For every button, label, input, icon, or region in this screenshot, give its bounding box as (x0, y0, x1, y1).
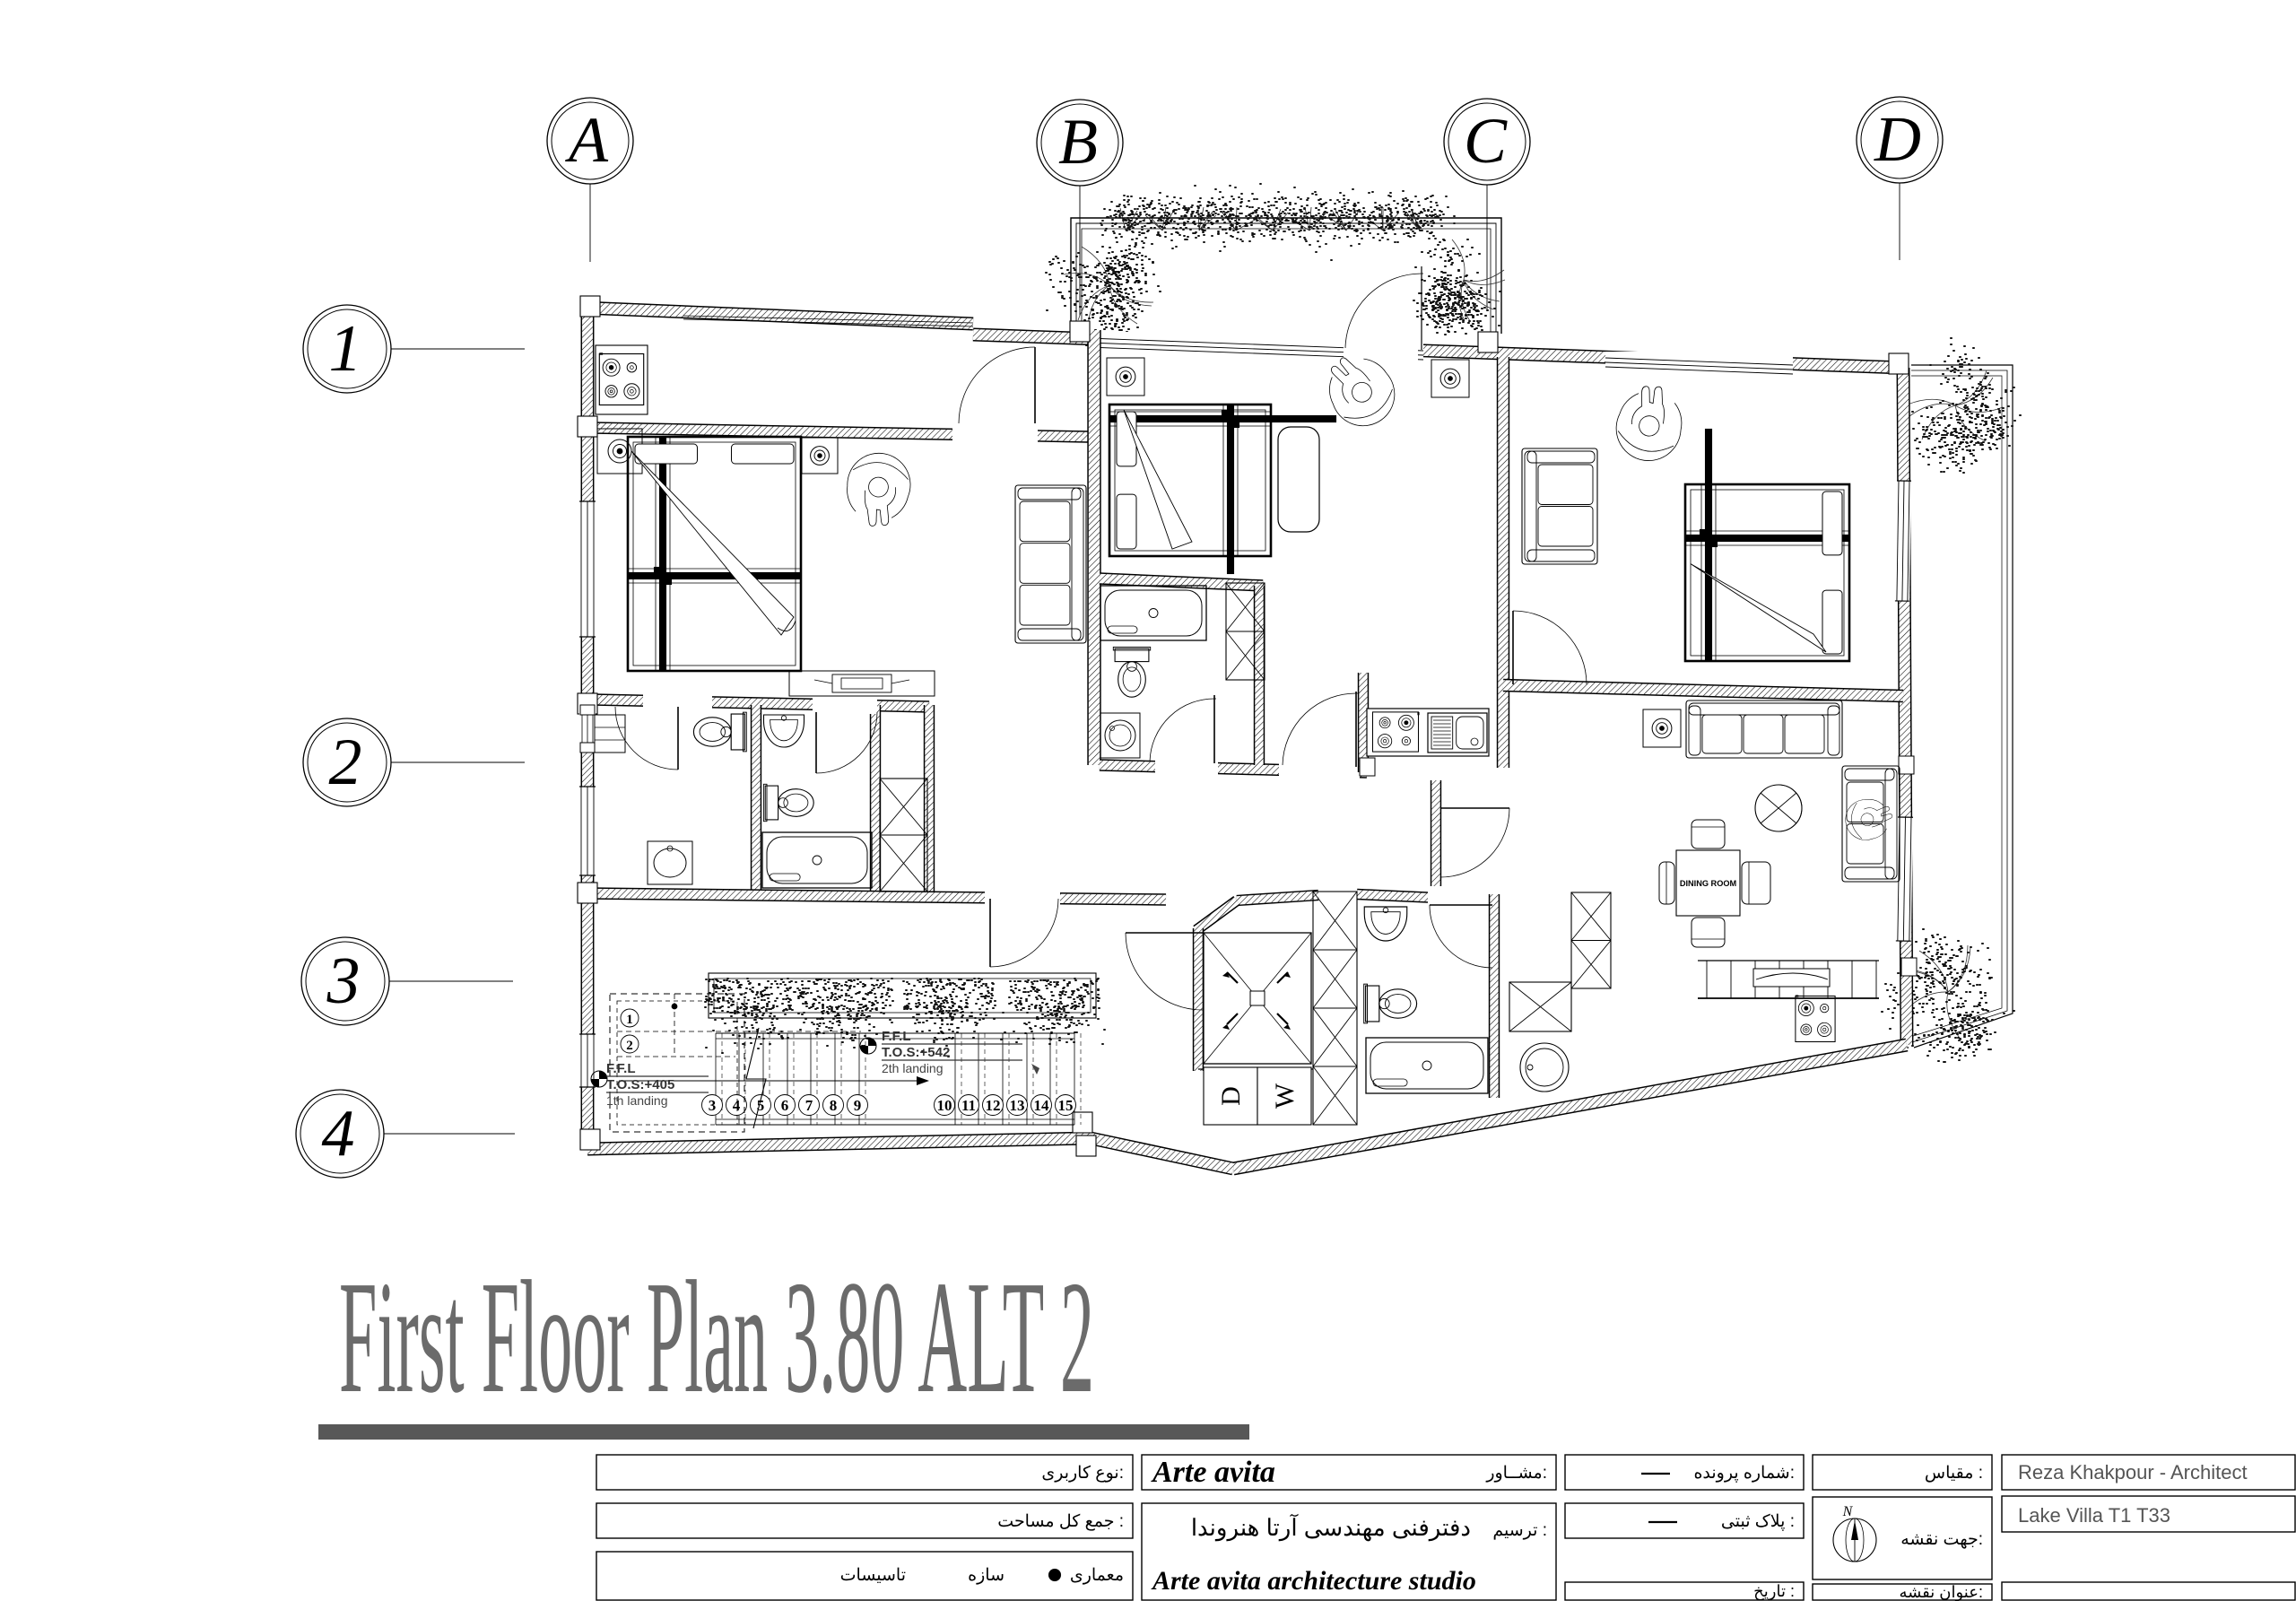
svg-text:D: D (1874, 103, 1921, 175)
svg-text:N: N (1842, 1504, 1854, 1519)
svg-text:معماری: معماری (1070, 1566, 1124, 1585)
svg-text:10: 10 (937, 1097, 952, 1114)
svg-text:T.O.S:+405: T.O.S:+405 (606, 1077, 674, 1092)
svg-text:مقیاس :: مقیاس : (1925, 1464, 1983, 1483)
svg-text:15: 15 (1058, 1097, 1074, 1114)
svg-text:6: 6 (781, 1097, 789, 1114)
svg-text:4: 4 (322, 1097, 355, 1170)
svg-text:2: 2 (626, 1039, 633, 1053)
svg-text:تاریخ :: تاریخ : (1753, 1582, 1795, 1601)
svg-text:7: 7 (805, 1097, 813, 1114)
svg-text:1: 1 (626, 1013, 633, 1027)
svg-text:ترسیم :: ترسیم : (1492, 1521, 1547, 1540)
svg-text:Lake Villa T1 T33: Lake Villa T1 T33 (2018, 1504, 2170, 1527)
svg-text:جمع کل مساحت :: جمع کل مساحت : (997, 1512, 1124, 1531)
svg-text:A: A (565, 104, 609, 176)
svg-text:14: 14 (1034, 1097, 1050, 1114)
svg-text:تاسیسات: تاسیسات (840, 1566, 906, 1585)
svg-text:9: 9 (854, 1097, 862, 1114)
svg-text:مشــاور:: مشــاور: (1485, 1464, 1547, 1483)
svg-text:پلاک ثبتی :: پلاک ثبتی : (1721, 1512, 1795, 1531)
svg-text:نوع کاربری:: نوع کاربری: (1041, 1464, 1124, 1483)
svg-text:D: D (1216, 1086, 1246, 1106)
svg-text:Reza Khakpour - Architect: Reza Khakpour - Architect (2018, 1461, 2248, 1484)
svg-text:11: 11 (961, 1097, 976, 1114)
svg-text:دفترفنی مهندسی آرتا هنروندا: دفترفنی مهندسی آرتا هنروندا (1191, 1513, 1471, 1542)
svg-text:13: 13 (1010, 1097, 1025, 1114)
svg-text:سازه: سازه (968, 1566, 1004, 1585)
svg-text:2th landing: 2th landing (882, 1061, 944, 1075)
svg-text:DINING ROOM: DINING ROOM (1680, 879, 1737, 888)
svg-text:8: 8 (830, 1097, 838, 1114)
svg-text:4: 4 (733, 1097, 741, 1114)
svg-text:T.O.S:+542: T.O.S:+542 (882, 1045, 950, 1060)
svg-text:B: B (1058, 106, 1098, 178)
svg-text:عنوان نقشه:: عنوان نقشه: (1899, 1583, 1983, 1601)
svg-text:3: 3 (709, 1097, 717, 1114)
svg-text:F.F.L: F.F.L (606, 1061, 636, 1076)
svg-text:شماره پرونده:: شماره پرونده: (1693, 1464, 1795, 1483)
svg-text:3: 3 (326, 944, 361, 1018)
svg-text:2: 2 (329, 726, 362, 799)
svg-text:1: 1 (329, 312, 362, 386)
svg-text:جهت نقشه:: جهت نقشه: (1900, 1530, 1983, 1549)
svg-text:First Floor Plan 3.80 ALT 2: First Floor Plan 3.80 ALT 2 (339, 1248, 1094, 1426)
svg-text:F.F.L: F.F.L (882, 1029, 911, 1044)
svg-text:1th landing: 1th landing (606, 1093, 668, 1108)
svg-text:C: C (1464, 105, 1508, 177)
svg-text:12: 12 (986, 1097, 1001, 1114)
svg-text:Arte avita architecture studio: Arte avita architecture studio (1151, 1566, 1476, 1596)
svg-text:W: W (1270, 1083, 1300, 1109)
svg-text:Arte avita: Arte avita (1151, 1456, 1275, 1489)
